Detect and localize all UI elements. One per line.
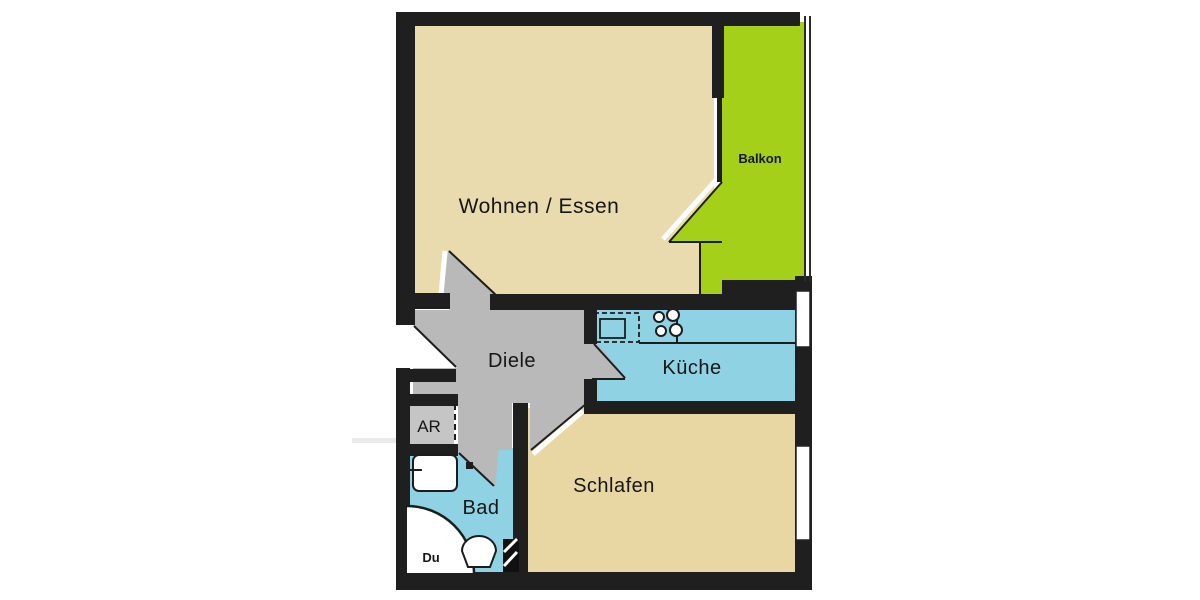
burner-4 — [670, 324, 682, 336]
label-ar: AR — [417, 417, 441, 436]
wall-balcony-thick — [712, 12, 724, 98]
toilet-icon — [462, 536, 496, 567]
label-diele: Diele — [488, 350, 536, 372]
window-schlafen — [796, 446, 810, 540]
scan-artifact — [352, 438, 398, 443]
wall-under-balcony — [722, 280, 795, 310]
burner-2 — [667, 309, 679, 321]
wall-ar-top — [396, 394, 458, 406]
washbasin-icon — [413, 455, 457, 491]
floorplan-canvas: Wohnen / Essen Balkon Diele Küche AR Bad… — [0, 0, 1200, 600]
label-balkon: Balkon — [738, 151, 781, 166]
label-bad: Bad — [462, 497, 499, 519]
wall-entry-stub — [396, 369, 456, 382]
wall-mid-left — [396, 293, 450, 309]
label-schlafen: Schlafen — [573, 475, 655, 497]
label-wohnen-essen: Wohnen / Essen — [459, 195, 620, 218]
wall-top — [396, 12, 800, 26]
bad-door-handle-mark — [466, 462, 473, 469]
wall-balcony-thin — [717, 98, 722, 182]
label-du: Du — [422, 550, 439, 565]
room-schlafen — [528, 408, 798, 573]
window-kueche — [796, 291, 810, 347]
wall-kueche-lower — [584, 379, 597, 404]
floorplan-svg: Wohnen / Essen Balkon Diele Küche AR Bad… — [0, 0, 1200, 600]
burner-1 — [654, 312, 664, 322]
balcony-door-passage — [700, 242, 722, 296]
wall-kueche-bottom — [584, 401, 795, 414]
label-kueche: Küche — [662, 357, 721, 379]
wall-left-upper — [396, 12, 415, 325]
wall-bottom — [396, 572, 812, 590]
burner-3 — [656, 326, 666, 336]
room-wohnen-essen — [414, 24, 714, 298]
